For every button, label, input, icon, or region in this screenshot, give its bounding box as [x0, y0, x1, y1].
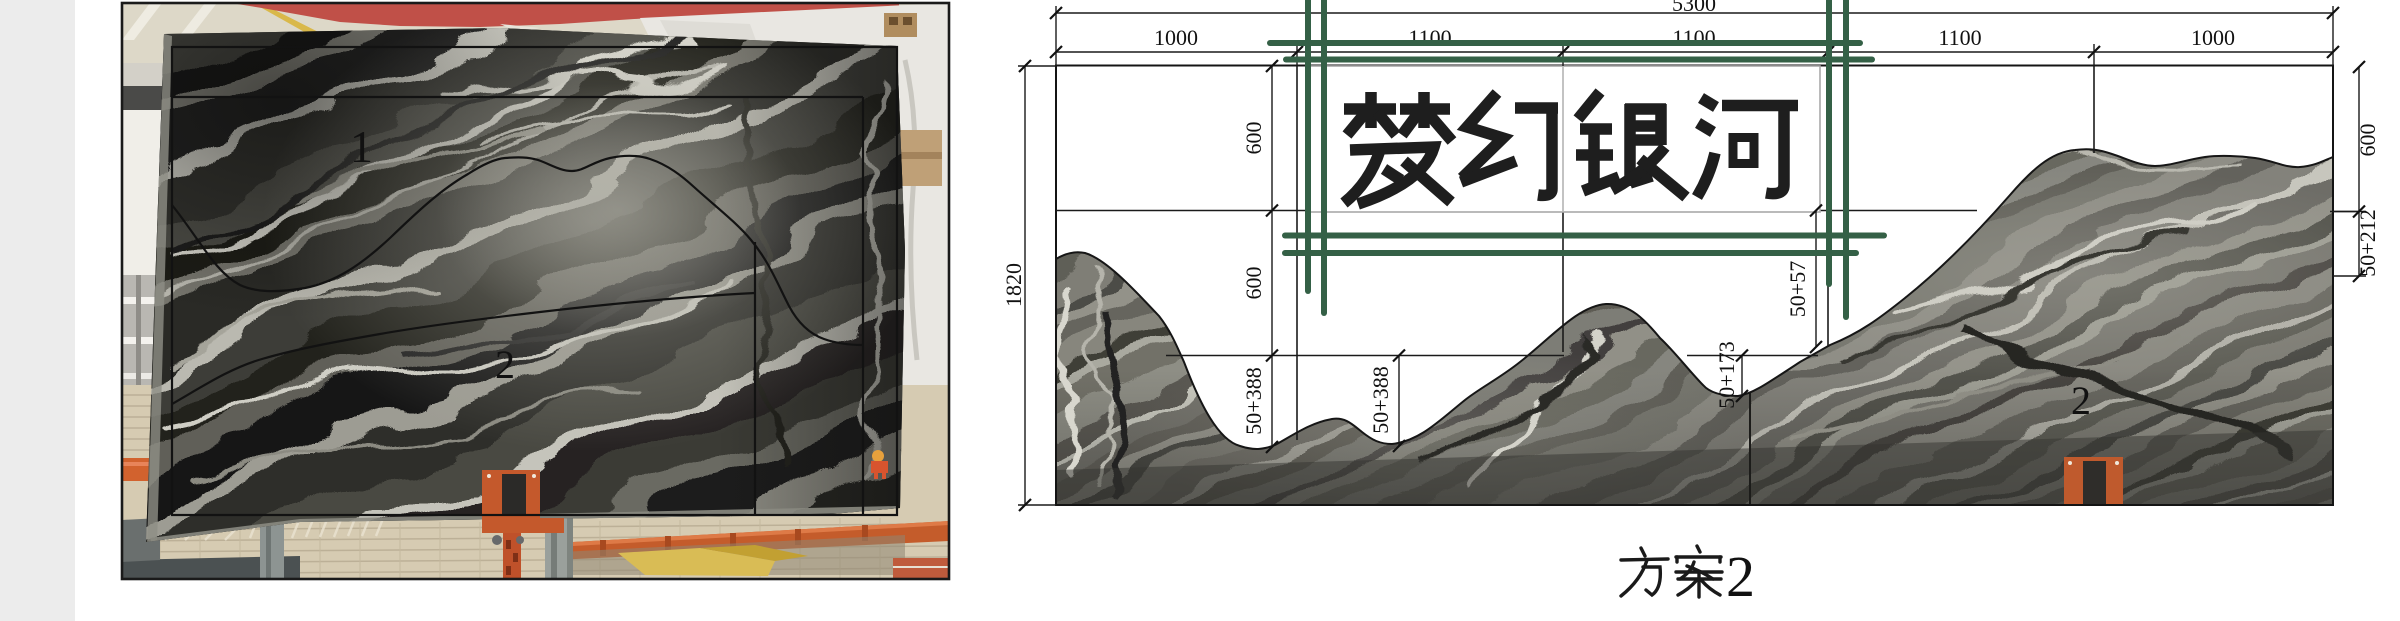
svg-text:1100: 1100: [1938, 25, 1981, 50]
svg-text:2: 2: [1726, 544, 1755, 609]
svg-text:50+57: 50+57: [1785, 261, 1810, 317]
svg-text:1000: 1000: [2191, 25, 2235, 50]
svg-text:1: 1: [350, 121, 373, 172]
svg-text:1100: 1100: [1408, 25, 1451, 50]
svg-text:50+173: 50+173: [1714, 341, 1739, 408]
svg-text:2: 2: [2071, 378, 2091, 423]
svg-text:600: 600: [2355, 124, 2380, 157]
svg-text:1820: 1820: [1001, 263, 1026, 307]
svg-text:1000: 1000: [1154, 25, 1198, 50]
svg-text:2: 2: [495, 342, 515, 387]
svg-text:1100: 1100: [1672, 25, 1715, 50]
svg-text:50+212: 50+212: [2355, 209, 2380, 276]
svg-text:50+388: 50+388: [1241, 367, 1266, 434]
svg-text:5300: 5300: [1672, 0, 1716, 16]
svg-text:600: 600: [1241, 122, 1266, 155]
svg-text:50+388: 50+388: [1368, 366, 1393, 433]
svg-text:600: 600: [1241, 267, 1266, 300]
